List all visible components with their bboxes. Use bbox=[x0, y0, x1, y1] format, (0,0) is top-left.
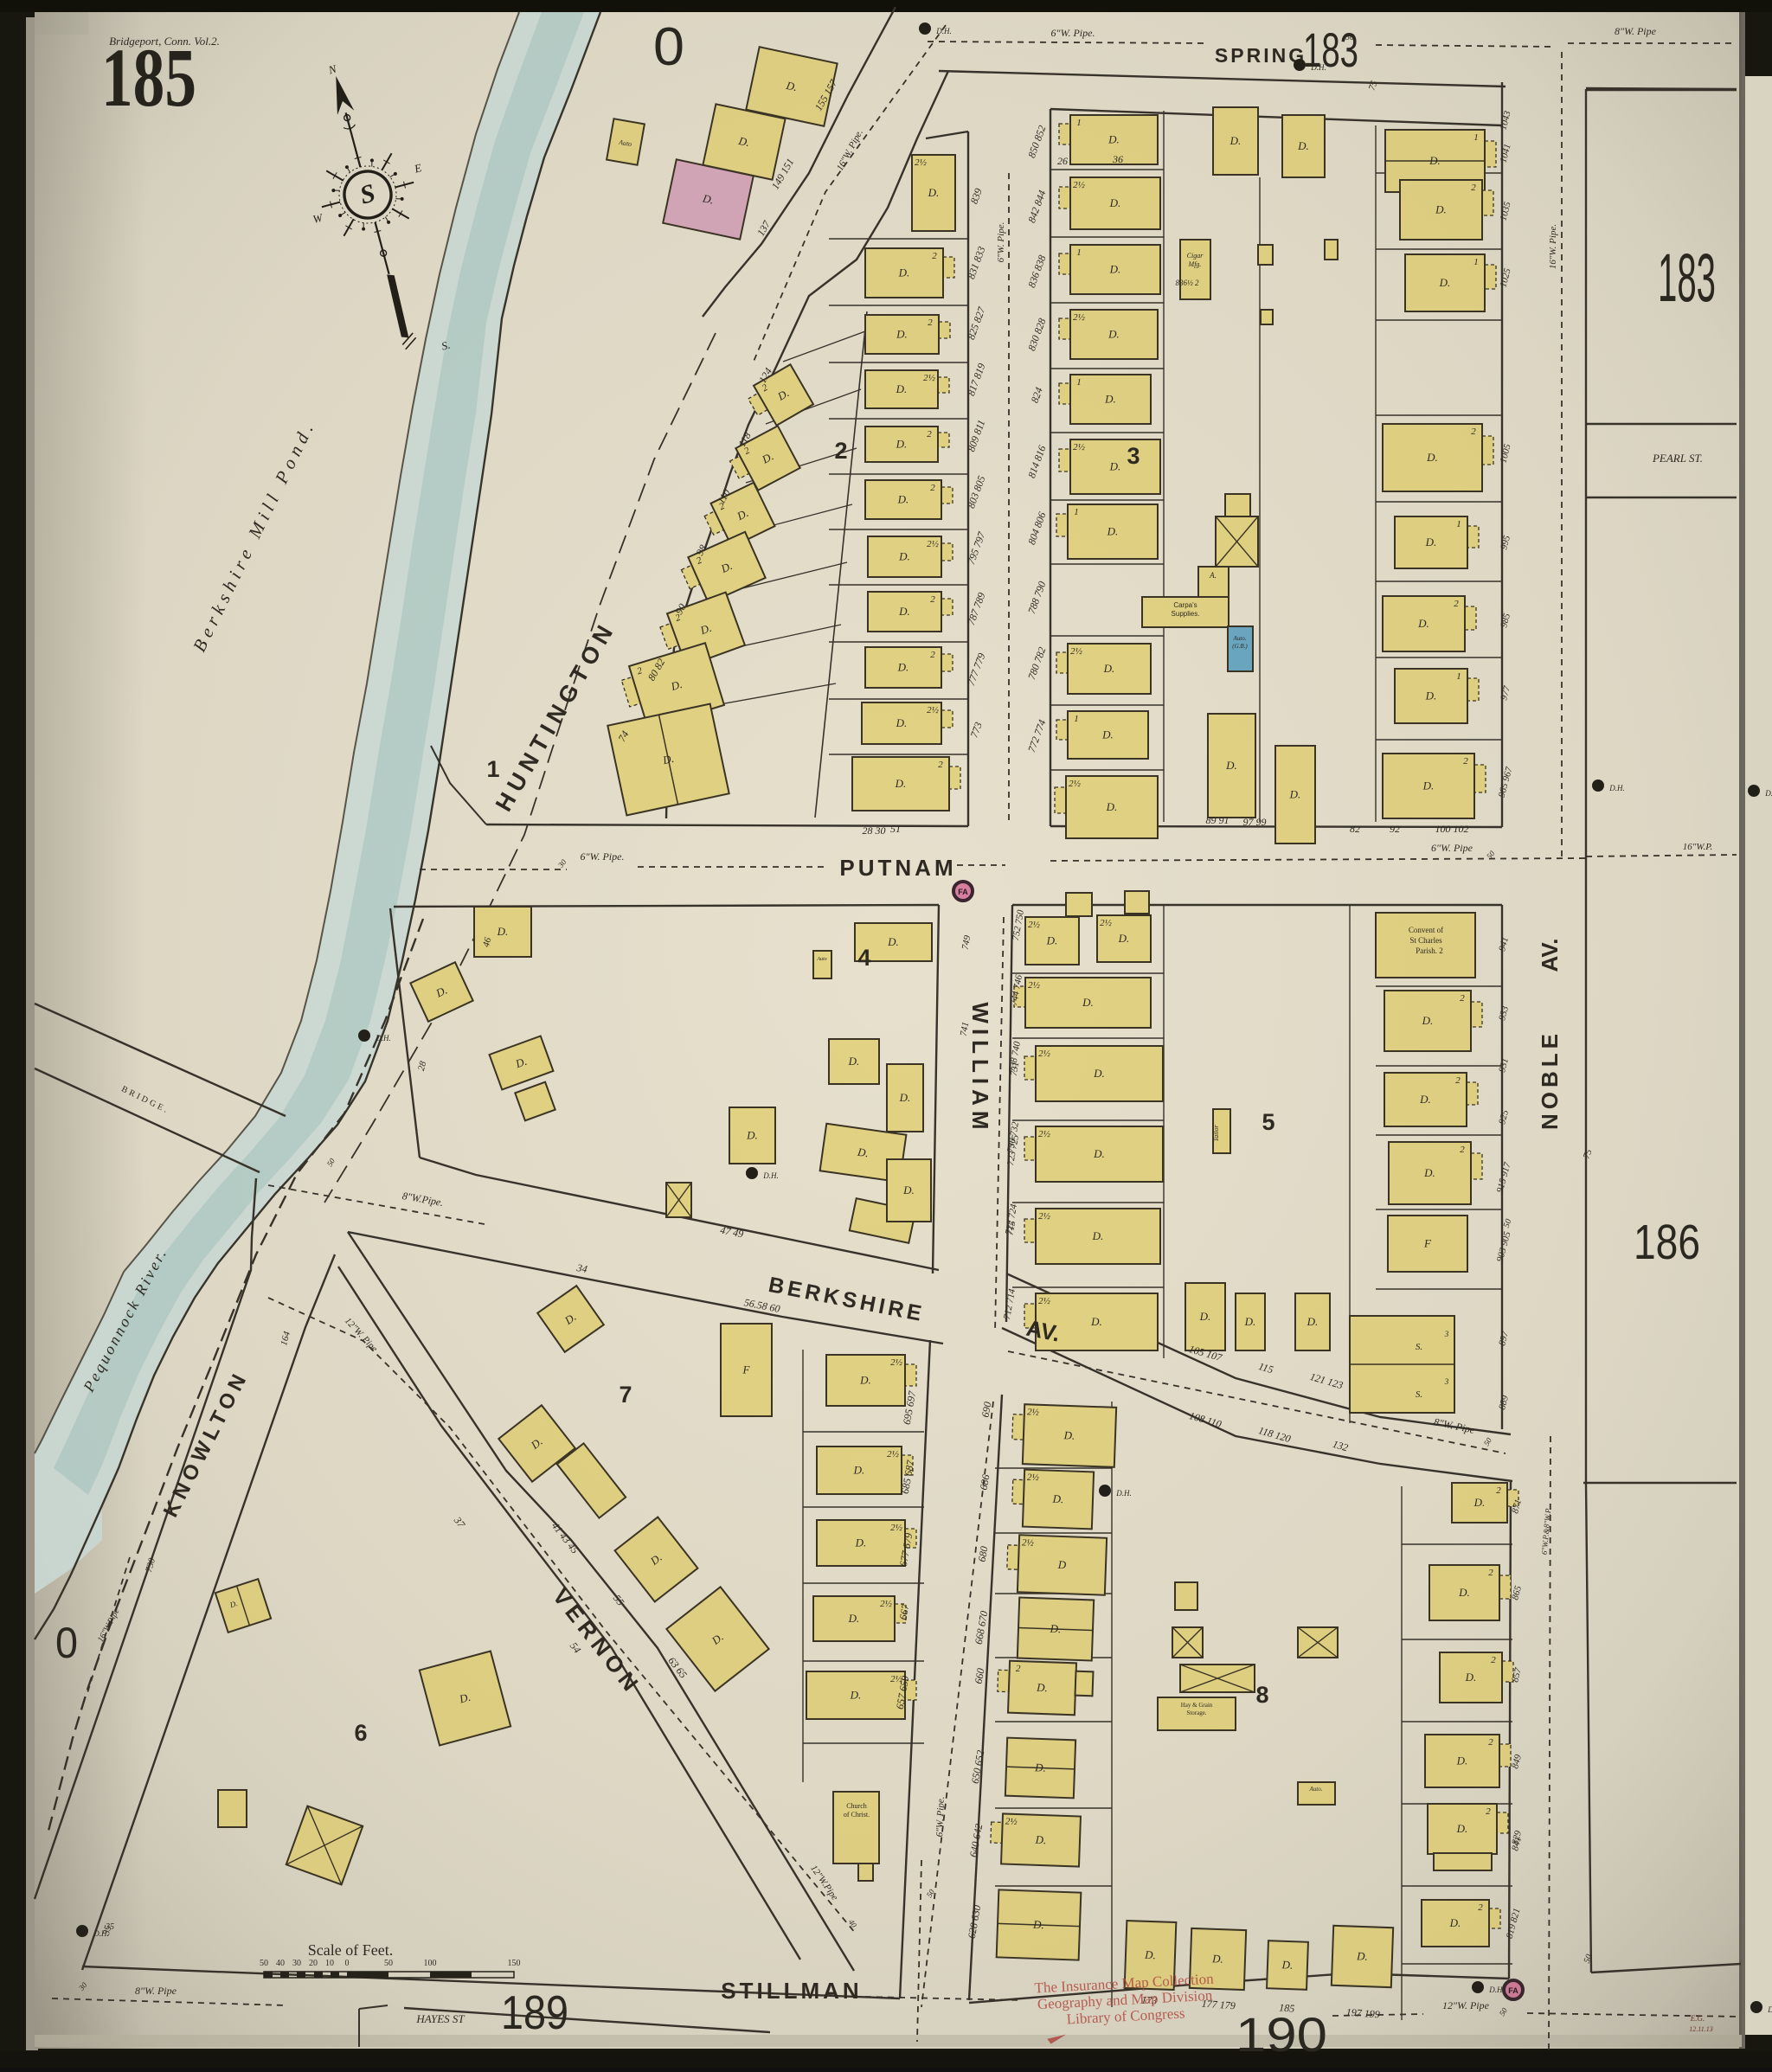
svg-text:D.H.: D.H. bbox=[1764, 789, 1772, 798]
svg-text:D.H.: D.H. bbox=[1767, 2005, 1772, 2014]
